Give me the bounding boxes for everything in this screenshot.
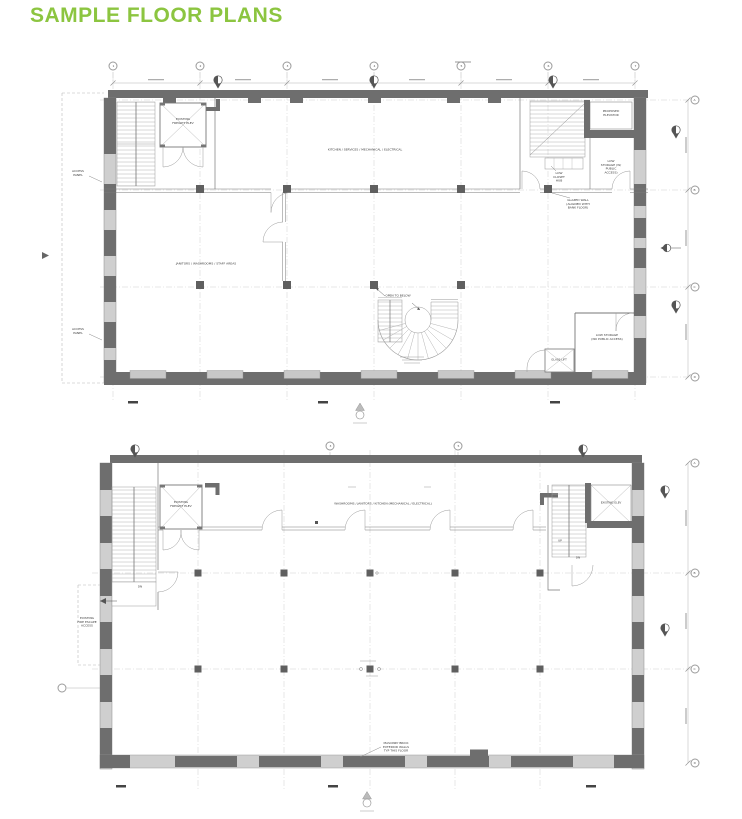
grid-bubble-2: 2	[196, 62, 205, 71]
floor-plan-drawings	[0, 0, 742, 819]
grid-bubble-lower-A: A	[691, 459, 700, 468]
spiral-stair	[376, 288, 458, 363]
lower-right-stair-and-elev	[548, 483, 633, 590]
north-arrow-icon	[360, 792, 374, 812]
grid-bubble-B: B	[691, 186, 700, 195]
upper-left-stair	[117, 102, 155, 186]
grid-bubble-6: 6	[544, 62, 553, 71]
grid-bubble-3: 3	[283, 62, 292, 71]
grid-bubble-lower-5: 5	[454, 442, 463, 451]
grid-bubble-1: 1	[109, 62, 118, 71]
section-marker-icon	[131, 445, 669, 637]
grid-bubble-D: D	[691, 373, 700, 382]
grid-bubble-lower-B: B	[691, 569, 700, 578]
grid-bubble-C: C	[691, 283, 700, 292]
upper-freight-elevator	[160, 99, 220, 167]
lower-columns	[195, 570, 544, 677]
upper-leader-lines	[89, 166, 570, 340]
floor-plan-page: SAMPLE FLOOR PLANS	[0, 0, 742, 819]
lower-freight-elevator	[160, 485, 202, 529]
grid-bubble-A: A	[691, 96, 700, 105]
grid-bubble-7: 7	[631, 62, 640, 71]
north-arrow-icon	[353, 403, 367, 423]
lower-partition-wall	[158, 487, 546, 550]
grid-bubble-lower-D: D	[691, 759, 700, 768]
upper-plan-property-line	[62, 93, 104, 383]
grid-bubble-lower-C: C	[691, 665, 700, 674]
grid-bubble-4: 4	[370, 62, 379, 71]
grid-bubble-lower-3: 3	[326, 442, 335, 451]
grid-bubble-5: 5	[457, 62, 466, 71]
upper-low-storage-room	[527, 313, 634, 372]
left-arrow-icon	[42, 252, 49, 259]
upper-right-stair-and-elev	[530, 100, 634, 169]
grid-bubble-lower-left	[58, 684, 67, 693]
